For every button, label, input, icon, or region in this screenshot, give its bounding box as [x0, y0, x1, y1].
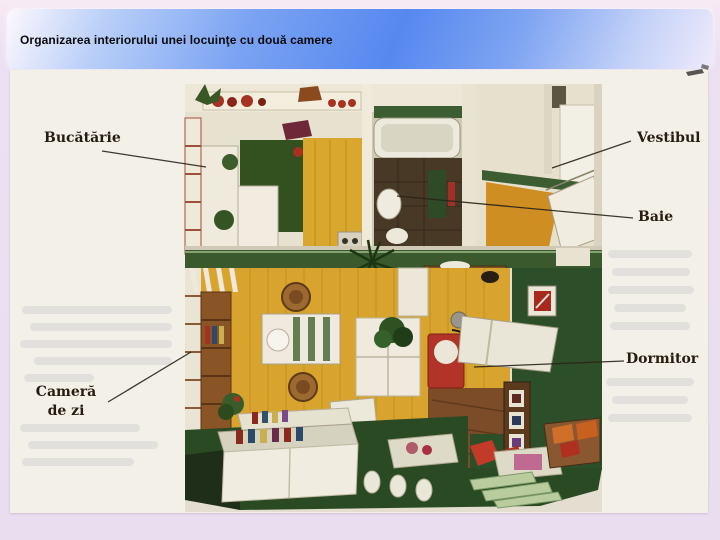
room-label-vestibul: Vestibul: [637, 129, 700, 148]
page-ink-mark: [686, 64, 709, 76]
teapot: [267, 329, 289, 351]
room-label-dormitor: Dormitor: [626, 350, 698, 369]
vestibule-area: [476, 84, 602, 255]
floor-vase: [390, 475, 406, 497]
room-label-baie: Baie: [638, 208, 673, 227]
floor-vase: [416, 479, 432, 501]
kitchen-area: [185, 84, 362, 255]
floor-plan-illustration: [0, 0, 720, 540]
room-label-camera-line1: Cameră: [30, 383, 102, 402]
floor-vase: [364, 471, 380, 493]
kitchen-bathroom-wall: [362, 84, 372, 255]
room-label-bucatarie: Bucătărie: [44, 129, 121, 148]
presentation-slide: { "slide": { "title": "Organizarea inter…: [0, 0, 720, 540]
room-label-camera-de-zi: Cameră de zi: [30, 383, 102, 421]
bathroom-area: [372, 106, 462, 255]
bathroom-vestibule-wall: [462, 84, 476, 255]
room-label-camera-line2: de zi: [30, 402, 102, 421]
